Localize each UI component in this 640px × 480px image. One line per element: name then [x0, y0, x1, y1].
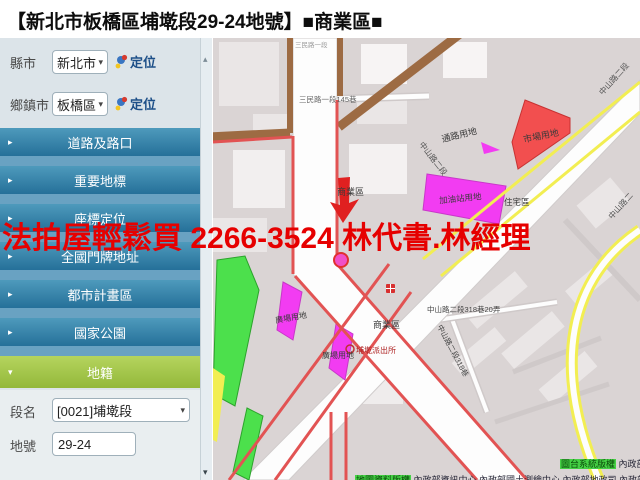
- parcel-label: 地號: [10, 436, 36, 455]
- ad-overlay-text: 法拍屋輕鬆買 2266-3524 林代書.林經理: [2, 213, 640, 257]
- chevron-right-icon: ▸: [8, 289, 13, 300]
- township-select[interactable]: 板橋區 ▾: [52, 92, 108, 116]
- street-label: 三民路一段145巷: [299, 94, 357, 104]
- copyright-sys-text: 內政部資訊中心: [619, 459, 640, 469]
- road-edge-brown: [287, 38, 293, 133]
- chevron-right-icon: ▸: [8, 327, 13, 338]
- county-select[interactable]: 新北市 ▾: [52, 50, 108, 74]
- locate-button-label: 定位: [130, 52, 156, 71]
- map-panel: 通路用地 中山路二段 市場用地 住宅區 加油站用地 商業區 商業區 廣場用地 廣…: [213, 38, 640, 480]
- county-label: 縣市: [10, 53, 36, 72]
- page-title: 【新北市板橋區埔墘段29-24地號】■商業區■: [7, 7, 383, 34]
- store-poi-icon: [386, 284, 395, 293]
- chevron-right-icon: ▸: [8, 137, 13, 148]
- zone-label: 商業區: [373, 319, 400, 330]
- chevron-down-icon: ▾: [98, 57, 103, 68]
- chevron-down-icon: ▾: [180, 405, 185, 416]
- copyright-line-2: 地圖資料版權 內政部資訊中心 內政部國土測繪中心 內政部地政司 內政部地政司: [355, 475, 640, 480]
- locate-pin-icon: [114, 96, 128, 111]
- parcel-number-value: 29-24: [58, 437, 91, 452]
- cadastral-form: 段名 [0021]埔墘段 ▾ 地號 29-24: [0, 390, 200, 480]
- title-bar: 【新北市板橋區埔墘段29-24地號】■商業區■: [0, 0, 640, 38]
- county-locate-button[interactable]: 定位: [114, 52, 156, 71]
- locate-pin-icon: [114, 54, 128, 69]
- zone-label: 住宅區: [504, 197, 530, 207]
- sidebar: 縣市 新北市 ▾ 定位 鄉鎮市 板橋區 ▾ 定位: [0, 38, 200, 480]
- township-locate-button[interactable]: 定位: [114, 94, 156, 113]
- street-label: 三民路一段: [295, 40, 328, 49]
- poi-label: 埔墘派出所: [356, 345, 396, 355]
- copyright-line-1: 圖台系統版權 內政部資訊中心: [560, 459, 640, 470]
- chevron-down-icon: ▾: [8, 367, 13, 378]
- scroll-down-icon[interactable]: ▾: [203, 467, 208, 478]
- township-row: 鄉鎮市 板橋區 ▾ 定位: [0, 90, 200, 118]
- parcel-number-input[interactable]: 29-24: [52, 432, 136, 456]
- township-label: 鄉鎮市: [10, 95, 49, 114]
- menu-item-landmarks[interactable]: ▸ 重要地標: [0, 166, 200, 194]
- menu-item-roads[interactable]: ▸ 道路及路口: [0, 128, 200, 156]
- street-label: 中山路二段318巷20弄: [427, 304, 501, 314]
- map-canvas[interactable]: 通路用地 中山路二段 市場用地 住宅區 加油站用地 商業區 商業區 廣場用地 廣…: [213, 38, 640, 480]
- section-label: 段名: [10, 402, 36, 421]
- scroll-up-icon[interactable]: ▴: [203, 54, 208, 65]
- chevron-down-icon: ▾: [98, 99, 103, 110]
- county-value: 新北市: [57, 53, 96, 72]
- menu-item-urban-plan[interactable]: ▸ 都市計畫區: [0, 280, 200, 308]
- locate-button-label: 定位: [130, 94, 156, 113]
- zone-label: 廣場用地: [322, 350, 354, 360]
- menu-item-national-park[interactable]: ▸ 國家公園: [0, 318, 200, 346]
- township-value: 板橋區: [57, 95, 96, 114]
- section-select[interactable]: [0021]埔墘段 ▾: [52, 398, 190, 422]
- road-edge-brown: [337, 38, 343, 96]
- sidebar-menu: ▸ 道路及路口 ▸ 重要地標 ▸ 座標定位 ▸ 全國門牌地址 ▸ 都市計畫區 ▸…: [0, 128, 200, 388]
- county-row: 縣市 新北市 ▾ 定位: [0, 48, 200, 76]
- zone-label: 商業區: [337, 186, 364, 197]
- copyright-sys-chip: 圖台系統版權: [560, 459, 616, 469]
- sidebar-scrollbar[interactable]: ▴ ▾: [200, 38, 212, 480]
- copyright-data-chip: 地圖資料版權: [355, 475, 411, 480]
- copyright-data-text: 內政部資訊中心 內政部國土測繪中心 內政部地政司 內政部地政司: [414, 475, 640, 480]
- menu-item-cadastral[interactable]: ▾ 地籍: [0, 356, 200, 388]
- section-value: [0021]埔墘段: [57, 401, 132, 420]
- chevron-right-icon: ▸: [8, 175, 13, 186]
